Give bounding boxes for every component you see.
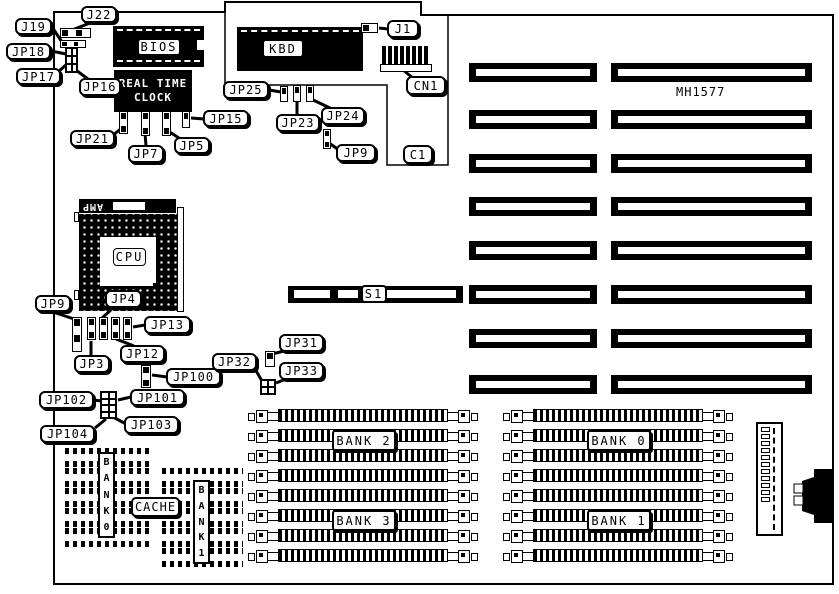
cache-bank1-vertical-label: BANK1	[193, 480, 210, 564]
power-pin	[761, 483, 770, 488]
simm-clip	[458, 530, 470, 543]
callout-label-c1: C1	[403, 145, 433, 164]
expansion-slot	[469, 154, 597, 173]
simm-socket	[248, 408, 478, 425]
bank3-label: BANK 3	[332, 510, 396, 531]
cpu-label: CPU	[113, 248, 146, 266]
simm-mount	[503, 493, 510, 501]
simm-clip	[256, 410, 268, 423]
jumper-block	[162, 111, 171, 136]
jumper-pin	[102, 400, 108, 405]
simm-mount	[503, 413, 510, 421]
jumper-pin	[101, 319, 106, 325]
simm-mount	[248, 433, 255, 441]
simm-mount	[503, 453, 510, 461]
callout-label-jp23: JP23	[276, 114, 320, 132]
simm-clip	[458, 430, 470, 443]
simm-clip	[713, 510, 725, 523]
simm-mount	[503, 553, 510, 561]
cn1-connector-pin	[412, 46, 416, 64]
expansion-slot	[469, 329, 597, 348]
s1-slot-segment	[386, 290, 456, 298]
jumper-block	[141, 365, 151, 388]
simm-mount	[471, 513, 478, 521]
jumper-block	[60, 28, 91, 38]
cpu-socket-tab	[74, 290, 79, 300]
callout-label-jp5: JP5	[174, 137, 210, 154]
simm-mount	[248, 493, 255, 501]
expansion-slot	[611, 154, 812, 173]
din-pin	[794, 484, 803, 493]
jumper-pin	[67, 57, 71, 63]
simm-clip	[256, 470, 268, 483]
slot-stripe	[618, 160, 805, 167]
expansion-slot	[611, 329, 812, 348]
simm-clip	[511, 550, 523, 563]
din-pin	[794, 496, 803, 505]
simm-mount	[503, 533, 510, 541]
expansion-slot	[469, 375, 597, 394]
jumper-pin	[184, 113, 188, 119]
jumper-pin	[102, 413, 108, 418]
callout-label-jp9t: JP9	[336, 144, 376, 162]
jumper-pin	[69, 30, 75, 36]
simm-clip	[256, 530, 268, 543]
simm-clip	[458, 490, 470, 503]
callout-label-jp103: JP103	[124, 416, 179, 434]
simm-clip	[511, 490, 523, 503]
real-time-clock-chip: REAL TIME CLOCK	[114, 70, 192, 112]
simm-clip	[713, 470, 725, 483]
jumper-pin	[113, 332, 118, 338]
bank2-label: BANK 2	[332, 430, 396, 451]
callout-label-jp16: JP16	[79, 78, 121, 96]
simm-mount	[248, 513, 255, 521]
callout-label-jp31: JP31	[279, 334, 324, 352]
jumper-block	[119, 111, 128, 134]
cn1-connector-pin	[424, 46, 428, 64]
simm-contacts	[533, 469, 703, 482]
jumper-pin	[267, 353, 273, 359]
simm-clip	[713, 490, 725, 503]
jumper-pin	[121, 113, 126, 119]
callout-label-jp104: JP104	[40, 425, 95, 443]
callout-label-jp102: JP102	[39, 391, 94, 409]
slot-stripe	[476, 335, 590, 342]
jumper-block	[141, 111, 150, 136]
cn1-connector-pin	[382, 46, 386, 64]
callout-label-cn1: CN1	[406, 76, 446, 95]
slot-stripe	[618, 203, 805, 210]
simm-mount	[248, 533, 255, 541]
callout-pointer-jp104	[95, 419, 106, 428]
jumper-pin	[295, 87, 299, 93]
cn1-connector-base	[380, 64, 432, 72]
slot-stripe	[618, 247, 805, 254]
power-pin	[761, 497, 770, 502]
jumper-pin	[184, 120, 188, 126]
simm-clip	[511, 470, 523, 483]
jumper-pin	[269, 381, 274, 386]
jumper-block	[265, 351, 275, 367]
expansion-slot	[611, 110, 812, 129]
cn1-connector-pin	[406, 46, 410, 64]
simm-mount	[471, 413, 478, 421]
bios-chip-label: BIOS	[138, 39, 180, 55]
chip-pin-row	[117, 60, 200, 62]
jumper-pin	[295, 94, 299, 100]
jumper-pin	[79, 42, 84, 46]
callout-label-jp24: JP24	[321, 107, 365, 125]
vertical-letter: B	[198, 485, 204, 496]
jumper-pin	[325, 142, 329, 147]
power-pin	[761, 455, 770, 460]
simm-contacts	[278, 469, 448, 482]
vertical-letter: 1	[198, 548, 204, 559]
jumper-block	[323, 129, 331, 149]
power-pin	[761, 448, 770, 453]
simm-mount	[248, 453, 255, 461]
simm-clip	[458, 450, 470, 463]
simm-mount	[471, 453, 478, 461]
simm-mount	[471, 533, 478, 541]
simm-clip	[511, 410, 523, 423]
jumper-pin	[125, 326, 130, 332]
jumper-pin	[89, 326, 94, 332]
jumper-pin	[308, 94, 312, 100]
simm-mount	[248, 413, 255, 421]
power-connector-key	[773, 428, 775, 530]
jumper-pin	[125, 319, 130, 325]
jumper-block	[72, 317, 82, 352]
s1-slot-segment	[338, 290, 358, 298]
simm-socket	[503, 468, 733, 485]
jumper-pin	[110, 406, 116, 411]
simm-clip	[511, 530, 523, 543]
jumper-pin	[67, 49, 71, 55]
jumper-pin	[83, 30, 89, 36]
simm-contacts	[278, 549, 448, 562]
expansion-slot	[611, 197, 812, 216]
jumper-pin	[113, 319, 118, 325]
jumper-pin	[73, 49, 77, 55]
slot-stripe	[476, 381, 590, 388]
simm-clip	[511, 450, 523, 463]
slot-stripe	[476, 291, 590, 298]
simm-clip	[713, 530, 725, 543]
jumper-pin	[68, 42, 73, 46]
jumper-pin	[101, 332, 106, 338]
simm-clip	[713, 450, 725, 463]
simm-clip	[256, 510, 268, 523]
jumper-pin	[74, 343, 80, 350]
slot-stripe	[476, 69, 590, 76]
callout-label-jp101: JP101	[130, 389, 185, 406]
jumper-pin	[164, 120, 169, 126]
callout-label-jp12: JP12	[120, 345, 165, 363]
jumper-pin	[62, 42, 67, 46]
slot-stripe	[476, 247, 590, 254]
jumper-pin	[143, 113, 148, 119]
simm-socket	[248, 468, 478, 485]
jumper-pin	[74, 335, 80, 342]
cache-label: CACHE	[131, 497, 180, 517]
jumper-pin	[121, 120, 126, 126]
board-model-number: MH1577	[676, 85, 725, 99]
callout-label-jp33: JP33	[279, 362, 324, 380]
simm-clip	[458, 510, 470, 523]
jumper-pin	[308, 87, 312, 93]
simm-clip	[458, 410, 470, 423]
callout-label-jp100: JP100	[166, 368, 221, 386]
simm-mount	[248, 473, 255, 481]
simm-mount	[726, 473, 733, 481]
jumper-pin	[113, 326, 118, 332]
expansion-slot	[469, 197, 597, 216]
jumper-pin	[73, 57, 77, 63]
vertical-letter: A	[198, 501, 204, 512]
rtc-label-line2: CLOCK	[134, 91, 172, 105]
jumper-block	[293, 85, 301, 102]
cn1-connector-pin	[394, 46, 398, 64]
jumper-pin	[370, 25, 376, 31]
slot-stripe	[476, 116, 590, 123]
vertical-letter: K	[198, 532, 204, 543]
simm-contacts	[533, 549, 703, 562]
expansion-slot	[611, 63, 812, 82]
jumper-block	[99, 317, 108, 340]
simm-mount	[726, 553, 733, 561]
simm-clip	[713, 430, 725, 443]
expansion-slot	[469, 63, 597, 82]
jumper-pin	[62, 30, 68, 36]
simm-clip	[511, 430, 523, 443]
vertical-letter: K	[103, 506, 109, 517]
simm-clip	[458, 550, 470, 563]
simm-socket	[503, 408, 733, 425]
jumper-block	[111, 317, 120, 340]
jumper-pin	[325, 137, 329, 142]
power-pin	[761, 434, 770, 439]
slot-stripe	[618, 69, 805, 76]
callout-label-jp15: JP15	[203, 110, 249, 127]
jumper-pin	[282, 88, 286, 94]
power-pin	[761, 490, 770, 495]
callout-label-j1: J1	[387, 20, 419, 38]
simm-contacts	[278, 409, 448, 422]
jumper-pin	[143, 128, 148, 134]
jumper-block	[123, 317, 132, 340]
callout-label-j19: J19	[15, 18, 52, 35]
jumper-pin	[282, 95, 286, 101]
callout-label-j22: J22	[81, 6, 117, 23]
jumper-pin	[143, 380, 149, 386]
expansion-slot	[469, 241, 597, 260]
jumper-pin	[89, 332, 94, 338]
jumper-pin	[74, 42, 79, 46]
simm-mount	[726, 413, 733, 421]
chip-pins	[65, 541, 149, 547]
jumper-pin	[325, 131, 329, 136]
slot-stripe	[476, 203, 590, 210]
bank0-label: BANK 0	[587, 430, 651, 451]
slot-stripe	[476, 160, 590, 167]
chip-notch	[197, 40, 204, 50]
vertical-letter: A	[103, 473, 109, 484]
power-pin	[761, 427, 770, 432]
jumper-pin	[269, 388, 274, 393]
simm-clip	[256, 550, 268, 563]
jumper-pin	[89, 319, 94, 325]
simm-clip	[458, 470, 470, 483]
callout-label-jp3: JP3	[74, 355, 110, 373]
simm-mount	[471, 493, 478, 501]
s1-slot-segment	[294, 290, 330, 298]
callout-label-jp21: JP21	[70, 130, 115, 147]
jumper-pin	[110, 400, 116, 405]
power-pin	[761, 462, 770, 467]
cn1-connector-pin	[418, 46, 422, 64]
jumper-block	[306, 85, 314, 102]
power-pin	[761, 476, 770, 481]
simm-clip	[713, 550, 725, 563]
power-pin	[761, 469, 770, 474]
slot-stripe	[618, 335, 805, 342]
jumper-pin	[164, 128, 169, 134]
motherboard-diagram: BIOS KBD REAL TIME CLOCK AMP CPU MH1577 …	[0, 0, 839, 594]
jumper-block	[361, 23, 378, 33]
simm-mount	[503, 473, 510, 481]
jumper-pin	[74, 319, 80, 326]
jumper-pin	[76, 30, 82, 36]
jumper-pin	[143, 374, 149, 380]
simm-socket	[503, 548, 733, 565]
simm-clip	[511, 510, 523, 523]
simm-mount	[471, 433, 478, 441]
jumper-pin	[262, 381, 267, 386]
vertical-letter: N	[103, 490, 109, 501]
jumper-grid-block	[65, 47, 78, 73]
chip-pin-row	[241, 30, 359, 32]
slot-stripe	[618, 291, 805, 298]
jumper-pin	[267, 360, 273, 366]
jumper-block	[280, 86, 288, 102]
s1-label: S1	[361, 285, 387, 303]
simm-mount	[726, 533, 733, 541]
callout-label-jp9l: JP9	[35, 295, 71, 312]
jumper-pin	[143, 367, 149, 373]
callout-label-jp13: JP13	[144, 316, 191, 334]
jumper-pin	[73, 65, 77, 71]
simm-contacts	[533, 409, 703, 422]
callout-label-jp25: JP25	[223, 81, 269, 99]
simm-clip	[256, 490, 268, 503]
jumper-pin	[102, 406, 108, 411]
simm-clip	[256, 450, 268, 463]
simm-contacts	[533, 489, 703, 502]
jumper-pin	[164, 113, 169, 119]
jumper-block	[87, 317, 96, 340]
cache-bank0-vertical-label: BANK0	[98, 452, 115, 538]
expansion-slot	[611, 375, 812, 394]
callout-pointer-jp100	[152, 375, 167, 377]
callout-label-jp32: JP32	[212, 353, 257, 371]
power-pin	[761, 441, 770, 446]
expansion-slot	[469, 285, 597, 304]
jumper-pin	[67, 65, 71, 71]
jumper-pin	[363, 25, 369, 31]
simm-clip	[256, 430, 268, 443]
simm-socket	[503, 488, 733, 505]
simm-mount	[726, 453, 733, 461]
callout-label-jp17: JP17	[16, 68, 61, 85]
callout-label-jp7: JP7	[128, 145, 164, 163]
simm-contacts	[278, 489, 448, 502]
chip-pin-row	[117, 29, 200, 31]
cpu-pin1-marker	[153, 283, 157, 287]
cpu-socket-notch	[113, 202, 145, 210]
cpu-socket-lever	[177, 207, 184, 312]
simm-mount	[503, 513, 510, 521]
simm-mount	[726, 433, 733, 441]
jumper-pin	[125, 332, 130, 338]
jumper-grid-block	[100, 391, 117, 419]
jumper-pin	[110, 413, 116, 418]
jumper-pin	[262, 388, 267, 393]
bank1-label: BANK 1	[587, 510, 651, 531]
expansion-slot	[611, 241, 812, 260]
cpu-socket-brand: AMP	[82, 201, 103, 212]
jumper-pin	[143, 120, 148, 126]
jumper-pin	[121, 126, 126, 132]
cn1-connector-pin	[388, 46, 392, 64]
simm-mount	[471, 553, 478, 561]
expansion-slot	[611, 285, 812, 304]
callout-pointer-jp9l	[53, 312, 74, 319]
slot-stripe	[618, 381, 805, 388]
simm-mount	[248, 553, 255, 561]
callout-label-jp18: JP18	[6, 43, 51, 60]
jumper-pin	[74, 327, 80, 334]
cpu-socket-tab	[74, 212, 79, 222]
jumper-pin	[101, 326, 106, 332]
jumper-block	[182, 111, 190, 128]
jumper-grid-block	[260, 379, 276, 395]
callout-label-jp4: JP4	[105, 290, 142, 308]
simm-mount	[471, 473, 478, 481]
simm-mount	[503, 433, 510, 441]
power-connector	[756, 422, 783, 536]
vertical-letter: 0	[103, 522, 109, 533]
kbd-chip-label: KBD	[263, 40, 303, 57]
rtc-label-line1: REAL TIME	[119, 77, 188, 91]
simm-clip	[713, 410, 725, 423]
jumper-pin	[102, 393, 108, 398]
simm-mount	[726, 513, 733, 521]
jumper-pin	[110, 393, 116, 398]
keyboard-din-connector	[802, 469, 833, 523]
simm-mount	[726, 493, 733, 501]
vertical-letter: B	[103, 457, 109, 468]
simm-socket	[248, 488, 478, 505]
simm-socket	[248, 548, 478, 565]
expansion-slot	[469, 110, 597, 129]
cn1-connector-pin	[400, 46, 404, 64]
slot-stripe	[618, 116, 805, 123]
vertical-letter: N	[198, 517, 204, 528]
